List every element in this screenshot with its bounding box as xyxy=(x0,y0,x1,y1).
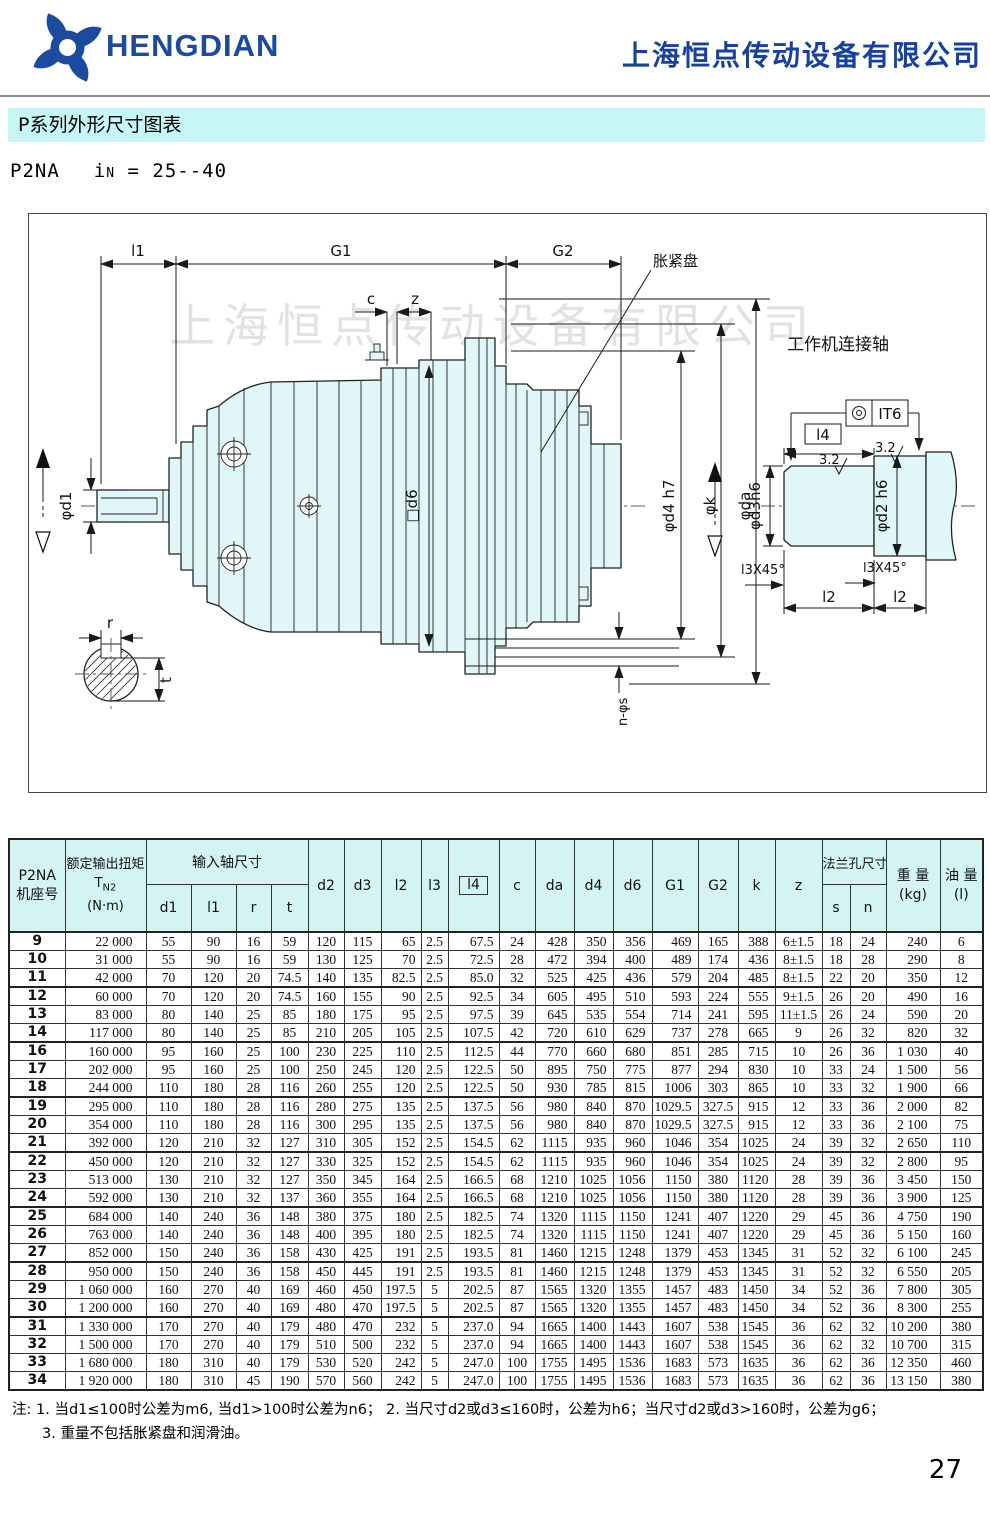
header-d4: d4 xyxy=(574,839,613,932)
table-cell: 39 xyxy=(822,1189,850,1208)
table-cell: 1241 xyxy=(652,1207,698,1226)
table-cell: 39 xyxy=(822,1171,850,1189)
table-cell: 303 xyxy=(698,1079,738,1098)
table-cell: 120 xyxy=(381,1079,421,1098)
table-cell: 66 xyxy=(940,1079,983,1098)
table-cell: 62 xyxy=(499,1152,535,1171)
table-cell: 179 xyxy=(271,1336,308,1354)
header-z: z xyxy=(775,839,822,932)
table-cell: 32 xyxy=(499,969,535,988)
table-cell: 770 xyxy=(535,1042,574,1061)
table-cell: 130 xyxy=(308,951,344,969)
table-cell: 2.5 xyxy=(421,1061,448,1079)
table-cell: 737 xyxy=(652,1024,698,1043)
table-cell: 32 xyxy=(850,1152,886,1171)
table-cell: 16 xyxy=(9,1042,65,1061)
table-cell: 1025 xyxy=(574,1171,613,1189)
table-row: 1383 000801402585180175952.597.539645535… xyxy=(9,1006,983,1024)
table-cell: 400 xyxy=(613,951,652,969)
table-cell: 32 xyxy=(850,1244,886,1263)
roughness-mark-b: 3.2 xyxy=(875,441,896,456)
table-cell: 1320 xyxy=(535,1226,574,1244)
table-row: 291 060 00016027040169460450197.55202.58… xyxy=(9,1281,983,1299)
table-cell: 120 xyxy=(146,1152,191,1171)
table-cell: 560 xyxy=(344,1372,381,1391)
table-cell: 1215 xyxy=(574,1244,613,1263)
company-logo xyxy=(30,10,105,85)
table-cell: 80 xyxy=(146,1006,191,1024)
table-cell: 160 xyxy=(191,1042,236,1061)
table-cell: 330 xyxy=(308,1152,344,1171)
table-cell: 32 xyxy=(236,1134,271,1153)
label-l4: l4 xyxy=(816,426,830,444)
table-cell: 135 xyxy=(381,1097,421,1116)
table-cell: 1755 xyxy=(535,1372,574,1391)
table-cell: 85 xyxy=(271,1024,308,1043)
table-cell: 595 xyxy=(738,1006,775,1024)
table-cell: 122.5 xyxy=(448,1079,499,1098)
table-cell: 237.0 xyxy=(448,1317,499,1336)
table-cell: 32 xyxy=(850,1024,886,1043)
label-expansion-disk: 胀紧盘 xyxy=(653,252,698,270)
table-cell: 535 xyxy=(574,1006,613,1024)
table-cell: 2.5 xyxy=(421,1006,448,1024)
table-cell: 3 450 xyxy=(886,1171,940,1189)
table-cell: 665 xyxy=(738,1024,775,1043)
table-cell: 555 xyxy=(738,987,775,1006)
table-cell: 32 xyxy=(850,1079,886,1098)
table-cell: 3 900 xyxy=(886,1189,940,1208)
table-cell: 169 xyxy=(271,1281,308,1299)
table-cell: 33 xyxy=(822,1116,850,1134)
table-cell: 915 xyxy=(738,1116,775,1134)
table-cell: 1025 xyxy=(574,1189,613,1208)
table-cell: 255 xyxy=(940,1299,983,1318)
table-cell: 32 xyxy=(850,1134,886,1153)
table-cell: 660 xyxy=(574,1042,613,1061)
table-cell: 11 xyxy=(9,969,65,988)
table-cell: 2.5 xyxy=(421,1042,448,1061)
table-cell: 242 xyxy=(381,1372,421,1391)
table-cell: 275 xyxy=(344,1097,381,1116)
table-cell: 75 xyxy=(940,1116,983,1134)
table-cell: 645 xyxy=(535,1006,574,1024)
table-cell: 120 xyxy=(191,969,236,988)
table-cell: 107.5 xyxy=(448,1024,499,1043)
table-cell: 42 000 xyxy=(65,969,146,988)
header-d2: d2 xyxy=(308,839,344,932)
table-cell: 247.0 xyxy=(448,1354,499,1372)
table-cell: 32 xyxy=(850,1262,886,1281)
table-cell: 865 xyxy=(738,1079,775,1098)
table-cell: 74.5 xyxy=(271,969,308,988)
table-cell: 480 xyxy=(308,1299,344,1318)
table-cell: 980 xyxy=(535,1097,574,1116)
table-cell: 1320 xyxy=(574,1299,613,1318)
table-cell: 170 xyxy=(146,1317,191,1336)
footnotes: 注: 1. 当d1≤100时公差为m6, 当d1>100时公差为n6； 2. 当… xyxy=(12,1398,885,1446)
table-cell: 180 xyxy=(191,1116,236,1134)
table-cell: 1 060 000 xyxy=(65,1281,146,1299)
table-cell: 160 xyxy=(146,1281,191,1299)
table-cell: 95 xyxy=(146,1061,191,1079)
table-cell: 20 xyxy=(850,987,886,1006)
table-cell: 315 xyxy=(940,1336,983,1354)
table-cell: 2.5 xyxy=(421,1171,448,1189)
table-cell: 45 xyxy=(822,1207,850,1226)
table-cell: 5 xyxy=(421,1317,448,1336)
table-cell: 100 xyxy=(499,1354,535,1372)
label-n-phi-s: n-φs xyxy=(616,697,631,726)
table-cell: 350 xyxy=(574,932,613,951)
table-cell: 2 800 xyxy=(886,1152,940,1171)
table-cell: 160 xyxy=(191,1061,236,1079)
model-code: P2NA xyxy=(10,160,60,182)
table-cell: 1460 xyxy=(535,1262,574,1281)
table-cell: 224 xyxy=(698,987,738,1006)
table-cell: 851 xyxy=(652,1042,698,1061)
table-cell: 10 xyxy=(775,1061,822,1079)
header-torque-title: 额定输出扭矩 xyxy=(66,855,146,874)
table-cell: 70 xyxy=(146,969,191,988)
table-cell: 55 xyxy=(146,951,191,969)
table-cell: 28 xyxy=(775,1171,822,1189)
table-cell: 1545 xyxy=(738,1336,775,1354)
table-cell: 9±1.5 xyxy=(775,987,822,1006)
table-cell: 2.5 xyxy=(421,1097,448,1116)
table-row: 311 330 000170270401794804702325237.0941… xyxy=(9,1317,983,1336)
table-cell: 470 xyxy=(344,1317,381,1336)
table-cell: 1210 xyxy=(535,1171,574,1189)
table-cell: 354 000 xyxy=(65,1116,146,1134)
table-cell: 29 xyxy=(775,1226,822,1244)
table-cell: 122.5 xyxy=(448,1061,499,1079)
table-cell: 18 xyxy=(822,932,850,951)
table-cell: 6 xyxy=(940,932,983,951)
table-cell: 10 200 xyxy=(886,1317,940,1336)
table-cell: 1536 xyxy=(613,1372,652,1391)
table-cell: 18 xyxy=(822,951,850,969)
table-cell: 290 xyxy=(886,951,940,969)
table-cell: 34 xyxy=(499,987,535,1006)
table-cell: 16 xyxy=(940,987,983,1006)
table-cell: 95 xyxy=(381,1006,421,1024)
table-cell: 204 xyxy=(698,969,738,988)
table-cell: 460 xyxy=(940,1354,983,1372)
table-cell: 36 xyxy=(236,1262,271,1281)
table-cell: 1120 xyxy=(738,1171,775,1189)
table-cell: 45 xyxy=(822,1226,850,1244)
table-cell: 62 xyxy=(822,1336,850,1354)
table-cell: 10 xyxy=(775,1079,822,1098)
page-title: P系列外形尺寸图表 xyxy=(8,108,985,142)
table-cell: 244 000 xyxy=(65,1079,146,1098)
table-cell: 1210 xyxy=(535,1189,574,1208)
header-k: k xyxy=(738,839,775,932)
table-cell: 8 300 xyxy=(886,1299,940,1318)
table-cell: 160 000 xyxy=(65,1042,146,1061)
table-cell: 830 xyxy=(738,1061,775,1079)
table-cell: 62 xyxy=(822,1354,850,1372)
table-cell: 32 xyxy=(236,1152,271,1171)
table-cell: 360 xyxy=(308,1189,344,1208)
table-cell: 150 xyxy=(146,1262,191,1281)
table-cell: 380 xyxy=(940,1372,983,1391)
table-cell: 245 xyxy=(344,1061,381,1079)
table-cell: 36 xyxy=(775,1336,822,1354)
table-cell: 31 000 xyxy=(65,951,146,969)
table-row: 28950 000150240361584504451912.5193.5811… xyxy=(9,1262,983,1281)
table-cell: 32 xyxy=(850,1317,886,1336)
table-cell: 12 xyxy=(940,969,983,988)
ratio-subscript: N xyxy=(106,166,115,181)
table-cell: 16 xyxy=(236,932,271,951)
table-cell: 240 xyxy=(191,1226,236,1244)
table-cell: 70 xyxy=(146,987,191,1006)
table-cell: 19 xyxy=(9,1097,65,1116)
table-cell: 29 xyxy=(9,1281,65,1299)
table-cell: 39 xyxy=(499,1006,535,1024)
label-sq-d6: □d6 xyxy=(403,489,421,522)
table-cell: 1443 xyxy=(613,1317,652,1336)
table-cell: 354 xyxy=(698,1152,738,1171)
table-cell: 2.5 xyxy=(421,932,448,951)
table-cell: 1241 xyxy=(652,1226,698,1244)
header-d3: d3 xyxy=(344,839,381,932)
table-cell: 68 xyxy=(499,1171,535,1189)
table-cell: 36 xyxy=(236,1207,271,1226)
table-cell: 80 xyxy=(146,1024,191,1043)
table-cell: 2.5 xyxy=(421,1116,448,1134)
table-cell: 1215 xyxy=(574,1262,613,1281)
table-cell: 232 xyxy=(381,1336,421,1354)
table-cell: 191 xyxy=(381,1262,421,1281)
table-cell: 240 xyxy=(191,1207,236,1226)
header-oil-unit: (l) xyxy=(941,886,983,905)
table-cell: 140 xyxy=(146,1226,191,1244)
table-cell: 840 xyxy=(574,1116,613,1134)
table-cell: 294 xyxy=(698,1061,738,1079)
table-cell: 180 xyxy=(146,1354,191,1372)
table-cell: 1120 xyxy=(738,1189,775,1208)
dimension-table: P2NA 机座号 额定输出扭矩 TN2 (N·m) 输入轴尺寸 d2 d3 l2… xyxy=(8,838,984,1391)
table-cell: 250 xyxy=(308,1061,344,1079)
table-cell: 247.0 xyxy=(448,1372,499,1391)
table-cell: 36 xyxy=(850,1207,886,1226)
table-row: 25684 000140240361483803751802.5182.5741… xyxy=(9,1207,983,1226)
table-cell: 270 xyxy=(191,1336,236,1354)
table-cell: 33 xyxy=(822,1079,850,1098)
table-cell: 1150 xyxy=(613,1207,652,1226)
table-cell: 327.5 xyxy=(698,1116,738,1134)
table-cell: 240 xyxy=(886,932,940,951)
table-cell: 1345 xyxy=(738,1244,775,1263)
table-cell: 305 xyxy=(344,1134,381,1153)
table-cell: 140 xyxy=(146,1207,191,1226)
work-shaft-title: 工作机连接轴 xyxy=(787,335,889,355)
table-row: 922 00055901659120115652.567.52442835035… xyxy=(9,932,983,951)
gearbox-dimension-drawing: 上海恒点传动设备有限公司 xyxy=(29,214,986,792)
table-cell: 840 xyxy=(574,1097,613,1116)
table-cell: 510 xyxy=(308,1336,344,1354)
table-cell: 1665 xyxy=(535,1317,574,1336)
table-cell: 1683 xyxy=(652,1354,698,1372)
table-cell: 180 xyxy=(146,1372,191,1391)
table-cell: 26 xyxy=(9,1226,65,1244)
table-cell: 225 xyxy=(344,1042,381,1061)
table-cell: 50 xyxy=(499,1079,535,1098)
table-cell: 125 xyxy=(940,1189,983,1208)
table-cell: 127 xyxy=(271,1134,308,1153)
table-cell: 2.5 xyxy=(421,1079,448,1098)
table-cell: 92.5 xyxy=(448,987,499,1006)
table-cell: 24 xyxy=(499,932,535,951)
table-cell: 28 xyxy=(499,951,535,969)
table-cell: 28 xyxy=(775,1189,822,1208)
table-cell: 56 xyxy=(499,1116,535,1134)
table-cell: 1029.5 xyxy=(652,1097,698,1116)
table-cell: 50 xyxy=(499,1061,535,1079)
table-group: 922 00055901659120115652.567.52442835035… xyxy=(9,932,983,987)
table-cell: 120 xyxy=(191,987,236,1006)
table-cell: 428 xyxy=(535,932,574,951)
table-cell: 8 xyxy=(940,951,983,969)
table-cell: 714 xyxy=(652,1006,698,1024)
table-cell: 9 xyxy=(9,932,65,951)
table-cell: 245 xyxy=(940,1244,983,1263)
table-cell: 135 xyxy=(344,969,381,988)
table-cell: 180 xyxy=(381,1226,421,1244)
header-torque-symbol: T xyxy=(95,876,103,891)
table-cell: 22 xyxy=(822,969,850,988)
table-cell: 22 xyxy=(9,1152,65,1171)
table-cell: 280 xyxy=(308,1097,344,1116)
table-cell: 1450 xyxy=(738,1281,775,1299)
table-cell: 24 xyxy=(850,932,886,951)
table-cell: 4 750 xyxy=(886,1207,940,1226)
table-cell: 179 xyxy=(271,1317,308,1336)
table-cell: 180 xyxy=(308,1006,344,1024)
table-cell: 436 xyxy=(613,969,652,988)
table-cell: 960 xyxy=(613,1134,652,1153)
table-cell: 205 xyxy=(940,1262,983,1281)
table-cell: 425 xyxy=(344,1244,381,1263)
table-cell: 110 xyxy=(146,1116,191,1134)
table-cell: 356 xyxy=(613,932,652,951)
table-cell: 24 xyxy=(9,1189,65,1208)
table-cell: 237.0 xyxy=(448,1336,499,1354)
table-cell: 1046 xyxy=(652,1134,698,1153)
header-s: s xyxy=(822,885,850,933)
table-cell: 62 xyxy=(822,1372,850,1391)
table-cell: 5 xyxy=(421,1354,448,1372)
table-cell: 52 xyxy=(822,1281,850,1299)
table-cell: 510 xyxy=(613,987,652,1006)
table-cell: 684 000 xyxy=(65,1207,146,1226)
table-cell: 350 xyxy=(886,969,940,988)
table-cell: 2.5 xyxy=(421,1024,448,1043)
table-cell: 2.5 xyxy=(421,1189,448,1208)
table-cell: 1056 xyxy=(613,1171,652,1189)
table-cell: 9 xyxy=(775,1024,822,1043)
table-cell: 197.5 xyxy=(381,1299,421,1318)
table-cell: 190 xyxy=(940,1207,983,1226)
table-cell: 785 xyxy=(574,1079,613,1098)
table-cell: 715 xyxy=(738,1042,775,1061)
table-cell: 158 xyxy=(271,1244,308,1263)
table-cell: 152 xyxy=(381,1152,421,1171)
table-cell: 26 xyxy=(822,987,850,1006)
table-cell: 1607 xyxy=(652,1317,698,1336)
table-cell: 327.5 xyxy=(698,1097,738,1116)
table-cell: 137.5 xyxy=(448,1116,499,1134)
label-phi-k: φk xyxy=(701,496,719,515)
table-group: 1260 000701202074.5160155902.592.5346054… xyxy=(9,987,983,1042)
table-cell: 179 xyxy=(271,1354,308,1372)
table-cell: 36 xyxy=(850,1354,886,1372)
table-cell: 232 xyxy=(381,1317,421,1336)
header-c: c xyxy=(499,839,535,932)
table-cell: 1683 xyxy=(652,1372,698,1391)
table-cell: 1565 xyxy=(535,1299,574,1318)
table-cell: 100 xyxy=(271,1061,308,1079)
table-cell: 12 350 xyxy=(886,1354,940,1372)
label-g2: G2 xyxy=(552,242,573,260)
label-phi-d4h7: φd4 h7 xyxy=(660,480,678,533)
table-cell: 1379 xyxy=(652,1244,698,1263)
model-line: P2NAiN = 25--40 xyxy=(10,160,227,182)
table-cell: 530 xyxy=(308,1354,344,1372)
table-cell: 12 xyxy=(775,1097,822,1116)
table-row: 23513 000130210321273503451642.5166.5681… xyxy=(9,1171,983,1189)
table-row: 17202 00095160251002502451202.5122.55089… xyxy=(9,1061,983,1079)
table-cell: 1 900 xyxy=(886,1079,940,1098)
table-cell: 34 xyxy=(775,1281,822,1299)
table-group: 22450 000120210321273303251522.5154.5621… xyxy=(9,1152,983,1207)
table-cell: 180 xyxy=(191,1097,236,1116)
table-cell: 32 xyxy=(9,1336,65,1354)
table-cell: 590 xyxy=(886,1006,940,1024)
table-cell: 25 xyxy=(236,1024,271,1043)
table-cell: 202 000 xyxy=(65,1061,146,1079)
table-cell: 579 xyxy=(652,969,698,988)
table-cell: 34 xyxy=(9,1372,65,1391)
table-cell: 202.5 xyxy=(448,1299,499,1318)
table-cell: 5 xyxy=(421,1372,448,1391)
table-cell: 193.5 xyxy=(448,1244,499,1263)
table-cell: 241 xyxy=(698,1006,738,1024)
table-cell: 36 xyxy=(850,1281,886,1299)
table-cell: 125 xyxy=(344,951,381,969)
table-cell: 182.5 xyxy=(448,1226,499,1244)
table-cell: 39 xyxy=(822,1134,850,1153)
table-cell: 81 xyxy=(499,1262,535,1281)
table-cell: 31 xyxy=(775,1244,822,1263)
table-cell: 28 xyxy=(9,1262,65,1281)
table-cell: 13 xyxy=(9,1006,65,1024)
header-frame-label: 机座号 xyxy=(10,886,65,905)
table-cell: 1150 xyxy=(652,1189,698,1208)
table-cell: 160 xyxy=(146,1299,191,1318)
header-frame-size: P2NA 机座号 xyxy=(9,839,65,932)
table-cell: 18 xyxy=(9,1079,65,1098)
table-cell: 680 xyxy=(613,1042,652,1061)
table-cell: 295 000 xyxy=(65,1097,146,1116)
table-cell: 8±1.5 xyxy=(775,969,822,988)
table-cell: 36 xyxy=(850,1042,886,1061)
table-cell: 100 xyxy=(499,1372,535,1391)
table-cell: 1025 xyxy=(738,1152,775,1171)
